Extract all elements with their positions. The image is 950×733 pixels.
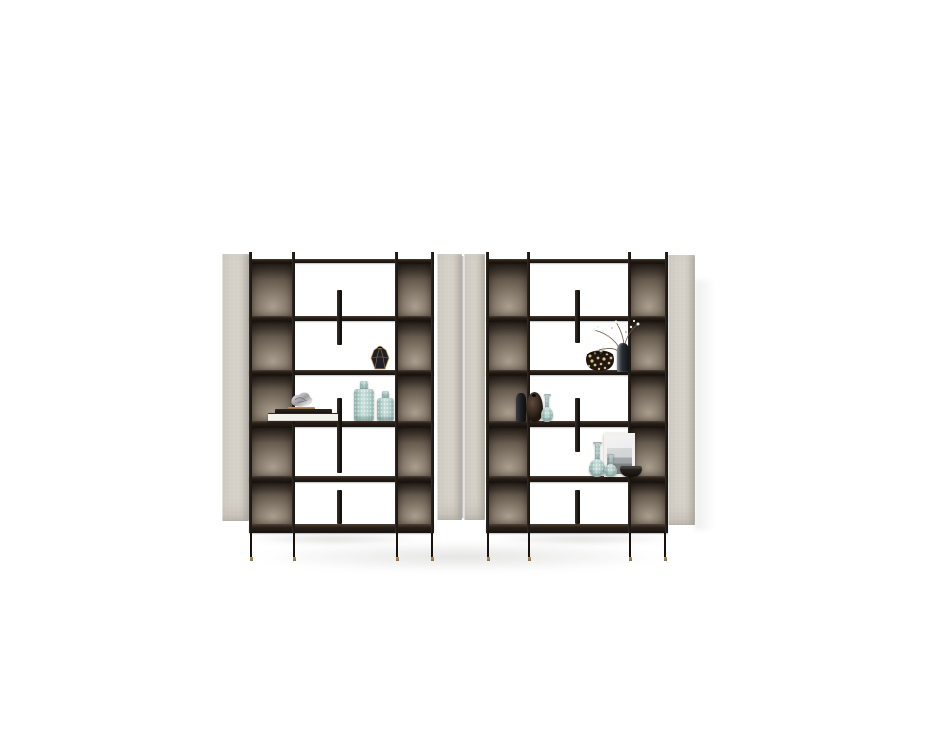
- shelf: [486, 476, 668, 482]
- leg: [431, 533, 433, 558]
- upright-post: [431, 252, 434, 533]
- leg-foot: [487, 557, 490, 561]
- bronze-back-panel: [398, 321, 431, 370]
- wall-cast-shadow: [695, 280, 715, 530]
- shelf-top: [486, 259, 668, 263]
- divider-tab: [575, 490, 580, 524]
- teal-vase-short: [377, 391, 394, 421]
- upright-post: [665, 252, 668, 533]
- leg-foot: [293, 557, 296, 561]
- book: [268, 413, 338, 422]
- leg-foot: [528, 557, 531, 561]
- bronze-back-panel: [489, 427, 527, 476]
- silver-sculpture: [289, 391, 315, 408]
- bronze-back-panel: [489, 321, 527, 370]
- upright-post: [628, 252, 631, 533]
- leg-foot: [629, 557, 632, 561]
- leg: [293, 533, 295, 558]
- product-photo: [0, 0, 950, 733]
- leg: [250, 533, 252, 558]
- bronze-back-panel: [631, 482, 665, 524]
- shelf-bottom: [249, 524, 434, 533]
- bronze-back-panel: [631, 263, 665, 316]
- bronze-back-panel: [252, 263, 292, 316]
- divider-tab: [337, 398, 342, 473]
- bronze-back-panel: [398, 427, 431, 476]
- upright-post: [527, 252, 530, 533]
- upright-post: [395, 252, 398, 533]
- divider-tab: [337, 290, 342, 345]
- shelf: [249, 370, 434, 375]
- leg: [487, 533, 489, 558]
- teal-bottle-tall: [589, 442, 605, 477]
- bronze-back-panel: [398, 263, 431, 316]
- leg: [528, 533, 530, 558]
- bronze-back-panel: [252, 321, 292, 370]
- bronze-back-panel: [489, 482, 527, 524]
- leg: [629, 533, 631, 558]
- bronze-back-panel: [398, 375, 431, 421]
- upright-post: [486, 252, 489, 533]
- bronze-back-panel: [398, 482, 431, 524]
- side-panel-right: [437, 254, 462, 520]
- divider-tab: [575, 290, 580, 343]
- black-vase: [516, 393, 526, 422]
- shelf: [486, 370, 668, 375]
- leg-foot: [396, 557, 399, 561]
- shelf-top: [249, 259, 434, 263]
- side-panel-left: [464, 254, 485, 520]
- teal-vase-tall: [354, 381, 374, 421]
- side-panel-right: [668, 255, 695, 525]
- leg-foot: [431, 557, 434, 561]
- dark-glass-vase: [617, 343, 629, 372]
- upright-post: [249, 252, 252, 533]
- bronze-back-panel: [252, 482, 292, 524]
- panel-seam: [462, 256, 464, 518]
- leg: [396, 533, 398, 558]
- shelf-bottom: [486, 524, 668, 533]
- divider-tab: [575, 398, 580, 452]
- floor-shadow: [170, 538, 750, 580]
- shelf: [249, 476, 434, 482]
- divider-tab: [337, 490, 342, 524]
- floor-shadow-right-unit: [462, 531, 702, 547]
- side-panel-left: [222, 254, 249, 521]
- leg-foot: [664, 557, 667, 561]
- teal-bottle-short: [604, 454, 617, 477]
- teal-bottle-small: [541, 394, 553, 422]
- bronze-back-panel: [489, 263, 527, 316]
- bronze-back-panel: [631, 375, 665, 421]
- faceted-gem-vase: [370, 345, 390, 371]
- leopard-print-bowl: [583, 347, 617, 372]
- leg-foot: [250, 557, 253, 561]
- leg: [664, 533, 666, 558]
- bronze-back-panel: [252, 427, 292, 476]
- floor-shadow-left-unit: [218, 531, 450, 547]
